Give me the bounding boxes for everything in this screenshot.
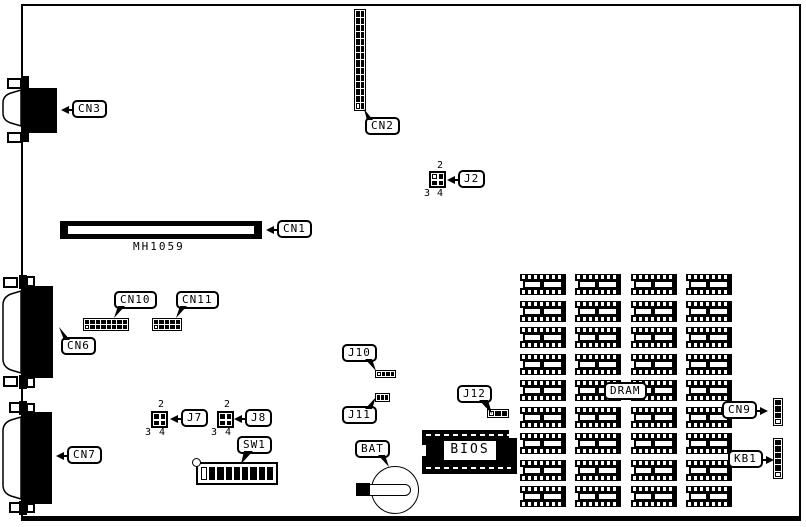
dram-chip bbox=[520, 301, 566, 322]
arrow-left-icon bbox=[447, 175, 461, 185]
dram-chip bbox=[520, 407, 566, 428]
pin bbox=[361, 60, 365, 66]
bios-chip: BIOS bbox=[422, 430, 517, 474]
pin bbox=[361, 89, 365, 95]
pin bbox=[161, 421, 166, 426]
dram-chip bbox=[631, 407, 677, 428]
pin bbox=[154, 414, 159, 419]
j10-label: J10 bbox=[342, 344, 377, 362]
pin bbox=[775, 446, 781, 451]
pin bbox=[85, 320, 89, 324]
pin bbox=[159, 320, 163, 324]
j8-jumper bbox=[217, 411, 234, 428]
cn2-label: CN2 bbox=[365, 117, 400, 135]
j8-pin2-number: 2 bbox=[224, 400, 230, 410]
j10-connector bbox=[375, 370, 396, 378]
label-text: J12 bbox=[463, 387, 486, 400]
pin bbox=[90, 325, 94, 329]
cn6-body bbox=[21, 286, 53, 378]
pin bbox=[432, 181, 437, 186]
pin bbox=[112, 320, 116, 324]
pin bbox=[107, 325, 111, 329]
j2-label: J2 bbox=[458, 170, 485, 188]
pin bbox=[775, 406, 781, 411]
cn11-connector bbox=[152, 318, 182, 331]
pin bbox=[775, 440, 781, 445]
dram-chip bbox=[686, 327, 732, 348]
j2-pin3-number: 3 bbox=[424, 189, 430, 199]
cn7-body bbox=[21, 412, 52, 504]
pin bbox=[361, 82, 365, 88]
pin bbox=[242, 467, 248, 480]
label-text: CN1 bbox=[283, 222, 306, 235]
dram-chip bbox=[686, 460, 732, 481]
pin bbox=[361, 25, 365, 31]
pin bbox=[96, 320, 100, 324]
cn7-label: CN7 bbox=[67, 446, 102, 464]
board-edge-top bbox=[21, 4, 801, 6]
j12-label: J12 bbox=[457, 385, 492, 403]
sw1-dip-switch bbox=[196, 462, 278, 485]
callout-tail-icon bbox=[365, 359, 377, 371]
pin bbox=[361, 96, 365, 102]
dram-chip bbox=[575, 407, 621, 428]
pin bbox=[227, 421, 232, 426]
pin bbox=[775, 419, 781, 424]
callout-tail-icon bbox=[365, 397, 377, 409]
pin bbox=[356, 89, 360, 95]
pin bbox=[775, 400, 781, 405]
cn7-connector bbox=[0, 399, 60, 517]
pin bbox=[439, 174, 444, 179]
cn3-body bbox=[21, 88, 57, 133]
label-text: J10 bbox=[348, 346, 371, 359]
label-text: J7 bbox=[187, 411, 202, 424]
label-text: CN2 bbox=[371, 119, 394, 132]
dram-chip bbox=[520, 354, 566, 375]
dram-chip bbox=[631, 327, 677, 348]
label-text: CN3 bbox=[78, 102, 101, 115]
j11-connector bbox=[375, 393, 390, 402]
label-text: J11 bbox=[348, 408, 371, 421]
cn1-slot-opening bbox=[68, 226, 254, 234]
cn6-label: CN6 bbox=[61, 337, 96, 355]
callout-tail-icon bbox=[114, 306, 126, 318]
arrow-left-icon bbox=[56, 451, 70, 461]
pin bbox=[112, 325, 116, 329]
label-text: BAT bbox=[361, 442, 384, 455]
cn9-connector bbox=[773, 398, 783, 426]
pin bbox=[165, 325, 169, 329]
pin bbox=[775, 453, 781, 458]
label-text: CN9 bbox=[728, 403, 751, 416]
pin bbox=[259, 467, 265, 480]
dram-chip bbox=[520, 274, 566, 295]
dram-chip bbox=[575, 460, 621, 481]
j2-pin2-number: 2 bbox=[437, 161, 443, 171]
pin bbox=[123, 325, 127, 329]
dram-chip bbox=[686, 433, 732, 454]
pin bbox=[356, 96, 360, 102]
j2-jumper bbox=[429, 171, 446, 188]
pin bbox=[502, 411, 507, 416]
pin bbox=[361, 53, 365, 59]
pin bbox=[439, 181, 444, 186]
pin bbox=[356, 11, 360, 17]
dram-chip bbox=[520, 380, 566, 401]
pin bbox=[107, 320, 111, 324]
pin bbox=[90, 320, 94, 324]
pin bbox=[356, 39, 360, 45]
pin bbox=[154, 320, 158, 324]
label-text: KB1 bbox=[734, 452, 757, 465]
j8-label: J8 bbox=[245, 409, 272, 427]
db-shell bbox=[3, 291, 21, 373]
callout-tail-icon bbox=[241, 451, 254, 464]
board-edge-bottom bbox=[21, 516, 801, 521]
callout-tail-icon bbox=[479, 400, 493, 414]
pin bbox=[377, 372, 381, 376]
callout-tail-icon bbox=[364, 109, 375, 120]
cn9-label: CN9 bbox=[722, 401, 757, 419]
j7-pin2-number: 2 bbox=[158, 400, 164, 410]
dram-chip bbox=[631, 274, 677, 295]
pin bbox=[170, 325, 174, 329]
j8-pin4-number: 4 bbox=[225, 428, 231, 438]
pin bbox=[775, 459, 781, 464]
j8-pin3-number: 3 bbox=[211, 428, 217, 438]
sw1-label: SW1 bbox=[237, 436, 272, 454]
pin bbox=[356, 25, 360, 31]
pin bbox=[381, 395, 384, 400]
pin bbox=[85, 325, 89, 329]
arrow-left-icon bbox=[266, 225, 280, 235]
label-text: SW1 bbox=[243, 438, 266, 451]
battery-pad bbox=[356, 483, 370, 496]
dram-chip bbox=[686, 380, 732, 401]
pin bbox=[96, 325, 100, 329]
pin bbox=[117, 320, 121, 324]
arrow-right-icon bbox=[760, 455, 774, 465]
bat-label: BAT bbox=[355, 440, 390, 458]
pin bbox=[117, 325, 121, 329]
dram-chip bbox=[631, 433, 677, 454]
cn1-part-number: MH1059 bbox=[133, 240, 185, 253]
j7-label: J7 bbox=[181, 409, 208, 427]
arrow-left-icon bbox=[61, 105, 75, 115]
pin bbox=[101, 325, 105, 329]
pin bbox=[220, 421, 225, 426]
pin bbox=[101, 320, 105, 324]
bios-label: BIOS bbox=[444, 441, 496, 460]
board-edge-right bbox=[799, 4, 801, 519]
pin bbox=[356, 18, 360, 24]
dram-chip bbox=[686, 486, 732, 507]
pin bbox=[356, 60, 360, 66]
cn2-connector bbox=[354, 9, 366, 111]
pin bbox=[391, 372, 395, 376]
pin bbox=[432, 174, 437, 179]
pin bbox=[201, 467, 207, 480]
pin bbox=[154, 421, 159, 426]
dram-chip bbox=[631, 301, 677, 322]
pin bbox=[234, 467, 240, 480]
j7-pin3-number: 3 bbox=[145, 428, 151, 438]
pin bbox=[495, 411, 500, 416]
kb1-label: KB1 bbox=[728, 450, 763, 468]
j2-pin4-number: 4 bbox=[437, 189, 443, 199]
label-text: DRAM bbox=[610, 384, 641, 397]
bios-edge-notch bbox=[422, 445, 426, 456]
pin bbox=[775, 465, 781, 470]
pin bbox=[382, 372, 386, 376]
cn3-connector bbox=[0, 74, 60, 146]
cn10-label: CN10 bbox=[114, 291, 157, 309]
dram-chip bbox=[575, 486, 621, 507]
pin bbox=[775, 413, 781, 418]
dram-chip bbox=[520, 460, 566, 481]
pin bbox=[361, 75, 365, 81]
label-text: CN6 bbox=[67, 339, 90, 352]
dram-chip bbox=[575, 433, 621, 454]
dram-chip bbox=[520, 486, 566, 507]
pin bbox=[356, 75, 360, 81]
pin bbox=[250, 467, 256, 480]
pin bbox=[209, 467, 215, 480]
pin bbox=[356, 82, 360, 88]
j11-label: J11 bbox=[342, 406, 377, 424]
pin bbox=[220, 414, 225, 419]
db-shell bbox=[3, 90, 21, 126]
pin bbox=[361, 11, 365, 17]
dram-chip bbox=[631, 354, 677, 375]
bios-pin-row-bottom bbox=[426, 467, 511, 469]
label-text: J2 bbox=[464, 172, 479, 185]
dram-chip bbox=[575, 354, 621, 375]
pin bbox=[159, 325, 163, 329]
j7-pin4-number: 4 bbox=[159, 428, 165, 438]
arrow-right-icon bbox=[754, 406, 768, 416]
kb1-connector bbox=[773, 438, 783, 479]
dram-chip bbox=[686, 301, 732, 322]
pin bbox=[361, 46, 365, 52]
db-shell bbox=[3, 417, 21, 499]
cn1-label: CN1 bbox=[277, 220, 312, 238]
dram-chip bbox=[631, 486, 677, 507]
pin bbox=[356, 68, 360, 74]
dram-chip bbox=[686, 354, 732, 375]
pin bbox=[123, 320, 127, 324]
pin bbox=[775, 472, 781, 477]
dram-chip bbox=[575, 274, 621, 295]
cn11-label: CN11 bbox=[176, 291, 219, 309]
pin bbox=[361, 39, 365, 45]
pin bbox=[361, 32, 365, 38]
label-text: CN10 bbox=[120, 293, 151, 306]
arrow-left-icon bbox=[234, 414, 248, 424]
dram-chip bbox=[631, 460, 677, 481]
pin bbox=[165, 320, 169, 324]
dram-chip bbox=[575, 301, 621, 322]
dram-chip bbox=[520, 433, 566, 454]
pin bbox=[176, 325, 180, 329]
pin bbox=[154, 325, 158, 329]
dram-chip bbox=[520, 327, 566, 348]
pin bbox=[356, 103, 360, 109]
callout-tail-icon bbox=[176, 306, 188, 318]
pin bbox=[227, 414, 232, 419]
callout-tail-icon bbox=[59, 327, 72, 340]
pin bbox=[385, 395, 388, 400]
cn3-label: CN3 bbox=[72, 100, 107, 118]
j7-jumper bbox=[151, 411, 168, 428]
pin bbox=[356, 32, 360, 38]
bios-corner-notch bbox=[509, 430, 517, 438]
pin bbox=[161, 414, 166, 419]
pin bbox=[386, 372, 390, 376]
label-text: CN11 bbox=[182, 293, 213, 306]
callout-tail-icon bbox=[378, 455, 390, 467]
pin bbox=[226, 467, 232, 480]
dram-chip bbox=[575, 327, 621, 348]
motherboard-diagram: CN3 CN2 2 3 4 J2 MH1059 CN1 CN10 CN11 bbox=[0, 0, 806, 527]
label-text: J8 bbox=[251, 411, 266, 424]
cn6-connector bbox=[0, 273, 60, 391]
label-text: CN7 bbox=[73, 448, 96, 461]
pin bbox=[356, 53, 360, 59]
battery-lead bbox=[368, 484, 411, 496]
bios-pin-row-top bbox=[426, 434, 511, 436]
pin bbox=[170, 320, 174, 324]
sw1-pin1-marker bbox=[192, 458, 201, 467]
pin bbox=[361, 68, 365, 74]
pin bbox=[361, 18, 365, 24]
pin bbox=[217, 467, 223, 480]
pin bbox=[356, 46, 360, 52]
pin bbox=[267, 467, 273, 480]
dram-chip bbox=[686, 274, 732, 295]
cn10-connector bbox=[83, 318, 129, 331]
pin bbox=[377, 395, 380, 400]
pin bbox=[176, 320, 180, 324]
arrow-left-icon bbox=[170, 414, 184, 424]
dram-label: DRAM bbox=[604, 382, 647, 400]
